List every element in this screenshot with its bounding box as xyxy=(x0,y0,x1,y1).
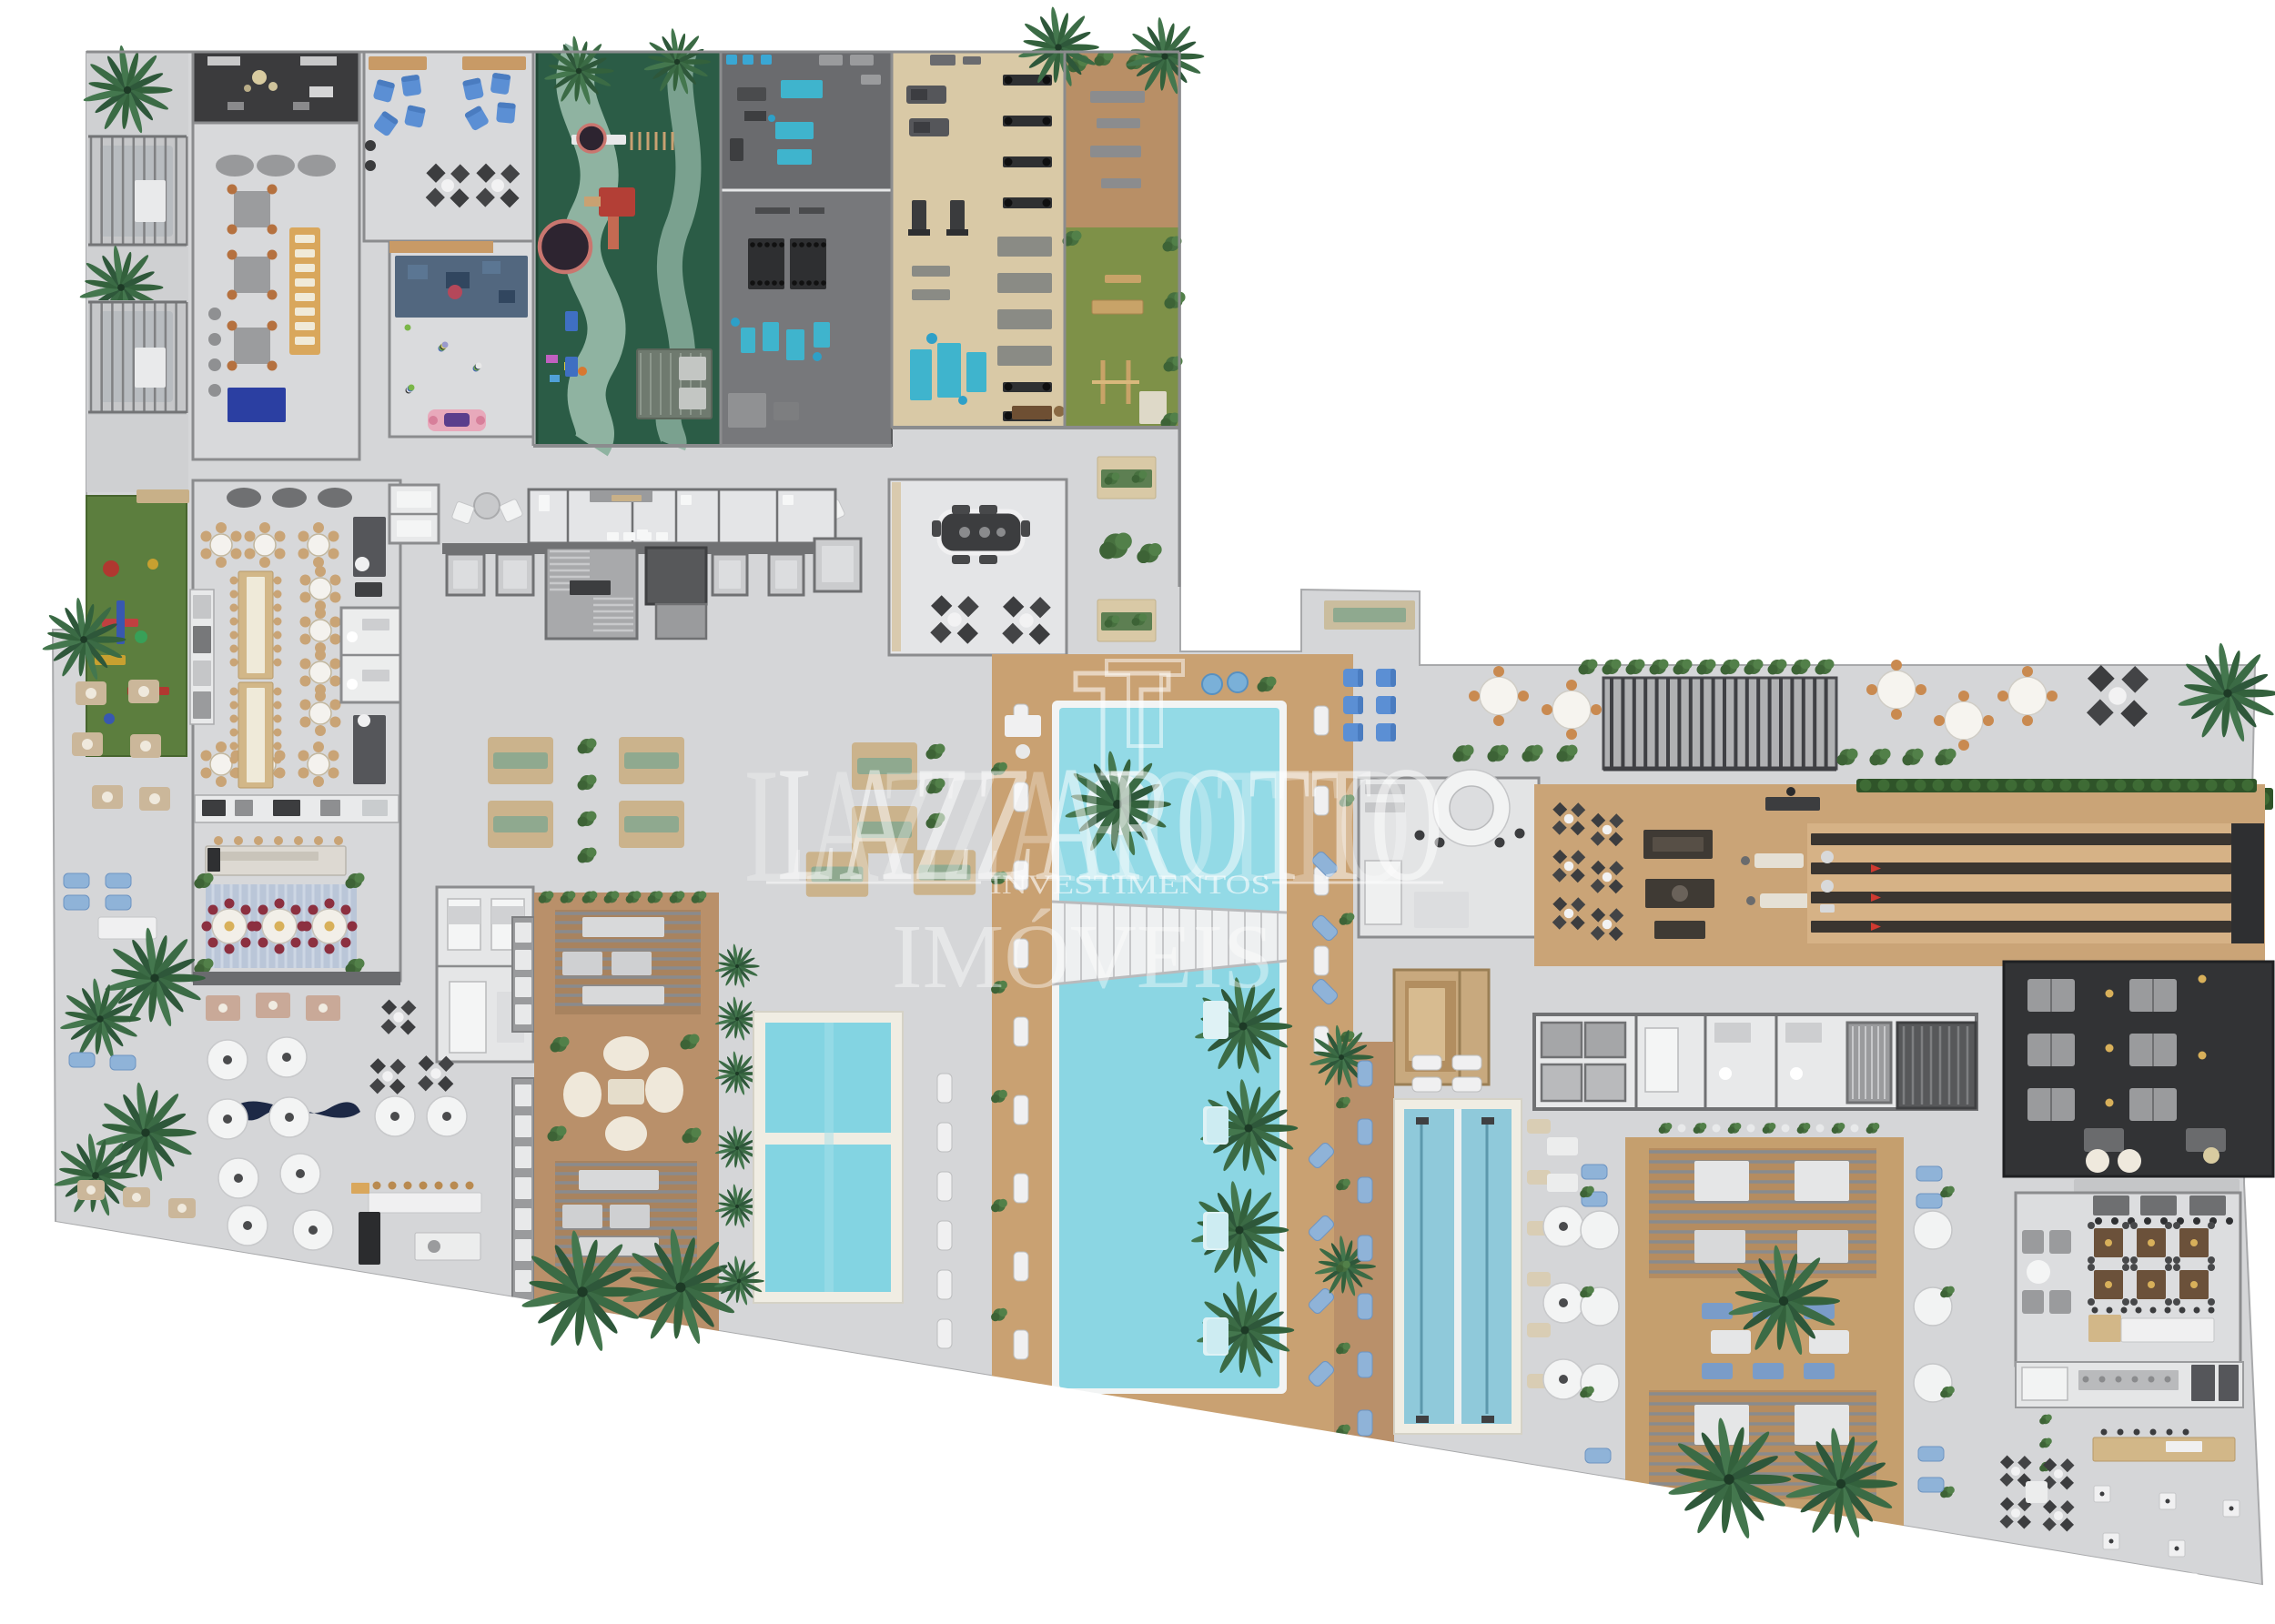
svg-text:INVESTIMENTOS: INVESTIMENTOS xyxy=(990,870,1270,900)
svg-text:LAZZAROTTO: LAZZAROTTO xyxy=(0,733,42,915)
svg-text:IMÓVEIS: IMÓVEIS xyxy=(892,905,1274,1007)
